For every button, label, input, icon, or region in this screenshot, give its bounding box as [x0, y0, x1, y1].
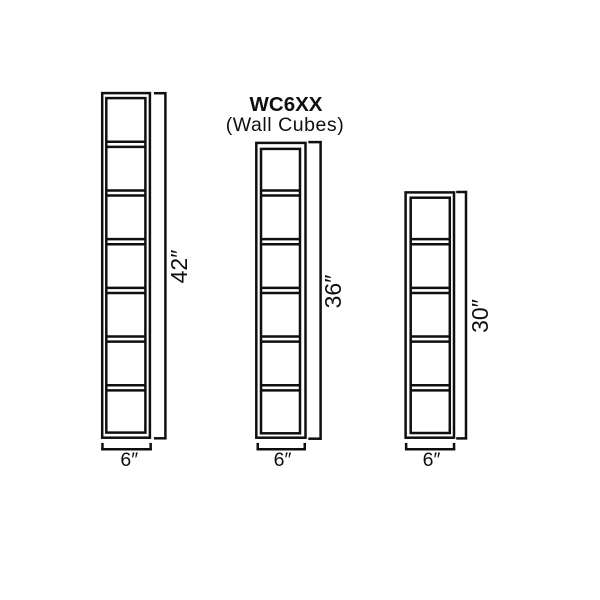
svg-text:WC6XX: WC6XX: [250, 93, 323, 116]
svg-text:42″: 42″: [166, 250, 192, 284]
svg-text:36″: 36″: [320, 275, 346, 309]
svg-text:6″: 6″: [423, 449, 441, 471]
svg-text:30″: 30″: [467, 299, 493, 333]
svg-text:6″: 6″: [120, 449, 138, 471]
svg-text:(Wall Cubes): (Wall Cubes): [226, 114, 345, 136]
svg-text:6″: 6″: [274, 449, 292, 471]
